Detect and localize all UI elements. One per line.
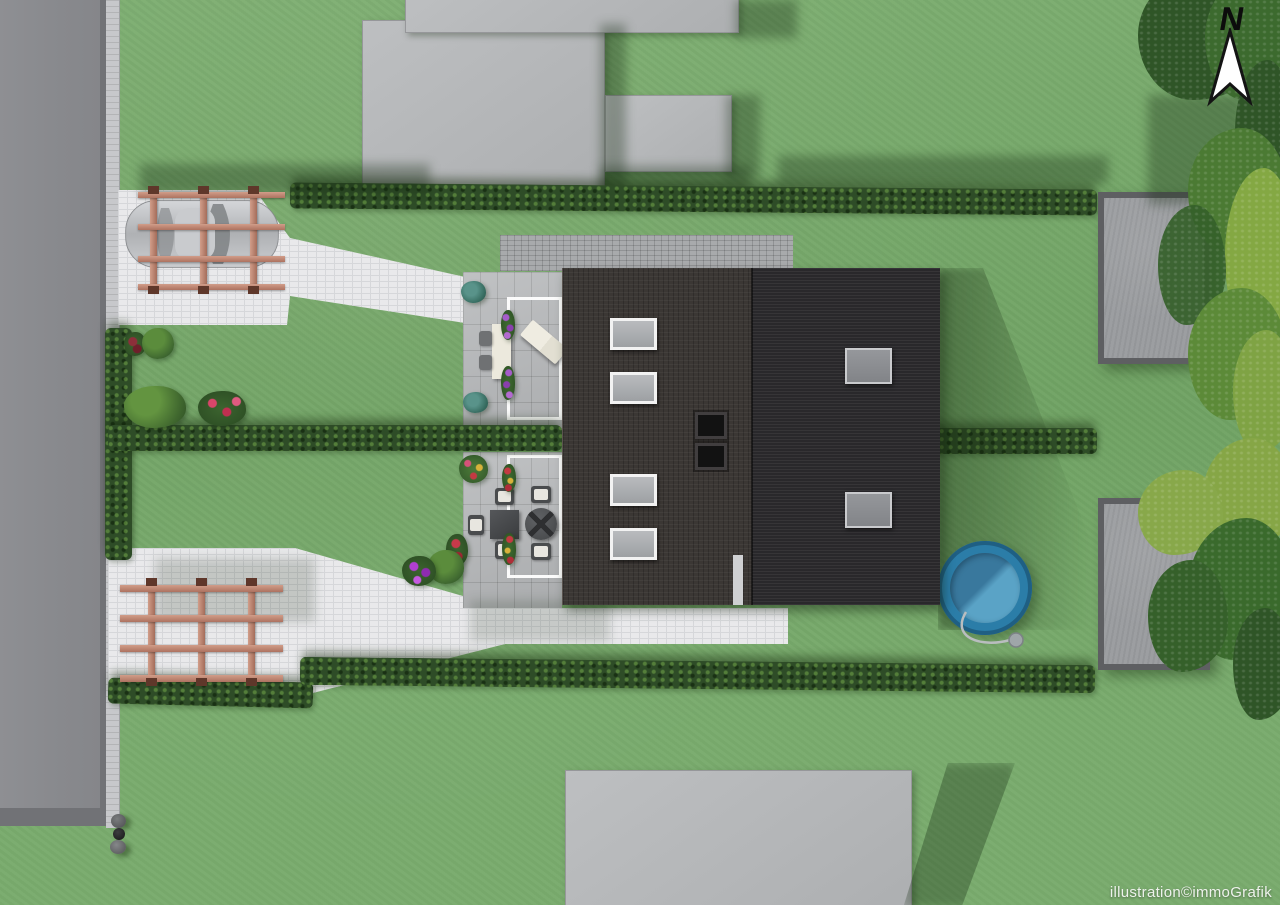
pergola-cap bbox=[146, 678, 157, 686]
pergola-beam bbox=[120, 585, 283, 592]
pergola-shadow bbox=[140, 164, 430, 194]
pergola-cap bbox=[148, 186, 159, 194]
street-border bbox=[0, 808, 106, 826]
house-shadow-south bbox=[470, 600, 610, 642]
pergola-beam bbox=[138, 256, 285, 262]
pergola-cap bbox=[196, 578, 207, 586]
pergola-post bbox=[150, 188, 157, 292]
chair-cushioned bbox=[468, 515, 484, 535]
building-shadow bbox=[903, 763, 1015, 905]
chair-cushioned bbox=[531, 543, 551, 560]
north-arrow-icon bbox=[1202, 28, 1258, 110]
roof-window bbox=[845, 348, 892, 384]
party-wall-strip bbox=[733, 555, 743, 605]
chair-cushioned bbox=[531, 486, 551, 503]
bush bbox=[142, 328, 174, 359]
chair bbox=[479, 331, 492, 346]
pergola-cap bbox=[248, 286, 259, 294]
compass: N bbox=[1198, 2, 1262, 112]
pergola-cap bbox=[148, 286, 159, 294]
house bbox=[562, 268, 940, 605]
tree bbox=[1148, 560, 1228, 672]
pergola-post bbox=[250, 188, 257, 292]
flower-planter-purple bbox=[501, 310, 515, 340]
building-shadow bbox=[735, 0, 797, 38]
hedge-middle-left bbox=[108, 425, 562, 451]
flower-bush bbox=[459, 455, 488, 483]
pergola-post bbox=[148, 580, 155, 684]
pool-hose bbox=[948, 598, 1040, 654]
roof-right bbox=[752, 268, 940, 605]
plant-corner bbox=[463, 392, 488, 413]
hedge-bottom-left bbox=[108, 677, 314, 708]
pergola-post bbox=[198, 580, 205, 684]
pergola-cap bbox=[248, 186, 259, 194]
skylight bbox=[610, 372, 657, 404]
waste-bin bbox=[110, 840, 126, 854]
pergola-post bbox=[248, 580, 255, 684]
waste-bin bbox=[111, 814, 126, 828]
neighbor-building bbox=[405, 0, 739, 33]
flower-planter-red bbox=[502, 464, 516, 492]
chair bbox=[479, 355, 492, 370]
pergola-cap bbox=[198, 286, 209, 294]
hedge-bottom-right bbox=[300, 657, 1095, 693]
pergola-beam bbox=[120, 615, 283, 622]
building-shadow bbox=[726, 95, 760, 179]
pergola-cap bbox=[246, 578, 257, 586]
flower-planter-purple bbox=[501, 366, 515, 400]
walkway-north bbox=[500, 235, 793, 271]
pergola-cap bbox=[198, 186, 209, 194]
pergola-beam bbox=[138, 192, 285, 198]
pergola-cap bbox=[146, 578, 157, 586]
table-round bbox=[525, 508, 557, 540]
skylight bbox=[610, 474, 657, 506]
roof-window bbox=[845, 492, 892, 528]
roof-ridge bbox=[751, 268, 753, 605]
skylight bbox=[610, 528, 657, 560]
waste-bin bbox=[113, 828, 125, 840]
neighbor-building-south bbox=[565, 770, 912, 905]
chimney bbox=[695, 443, 727, 470]
hedge-shadow bbox=[778, 156, 1108, 184]
flower-planter-red bbox=[502, 533, 516, 565]
flower-bush-purple bbox=[402, 556, 436, 586]
skylight bbox=[610, 318, 657, 350]
pergola-post bbox=[200, 188, 207, 292]
watermark: illustration©immoGrafik bbox=[1110, 884, 1272, 901]
pergola-cap bbox=[196, 678, 207, 686]
plant-corner bbox=[461, 281, 486, 303]
flower-bush-pink bbox=[198, 391, 246, 426]
chimney bbox=[695, 412, 727, 439]
pergola-beam bbox=[120, 645, 283, 652]
pergola-cap bbox=[246, 678, 257, 686]
street bbox=[0, 0, 102, 810]
pergola-beam bbox=[138, 224, 285, 230]
bush bbox=[124, 386, 186, 428]
pergola-beam bbox=[138, 284, 285, 290]
site-plan: N illustration©immoGrafik bbox=[0, 0, 1280, 905]
